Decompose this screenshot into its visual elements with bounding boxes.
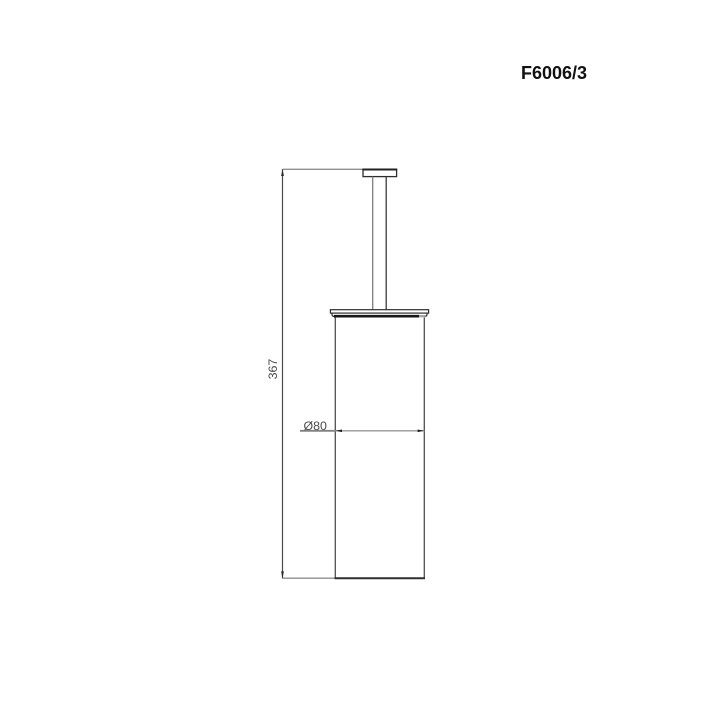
svg-text:Ø80: Ø80 [304, 419, 328, 433]
svg-text:F6006/3: F6006/3 [521, 63, 587, 83]
svg-text:367: 367 [266, 359, 280, 380]
